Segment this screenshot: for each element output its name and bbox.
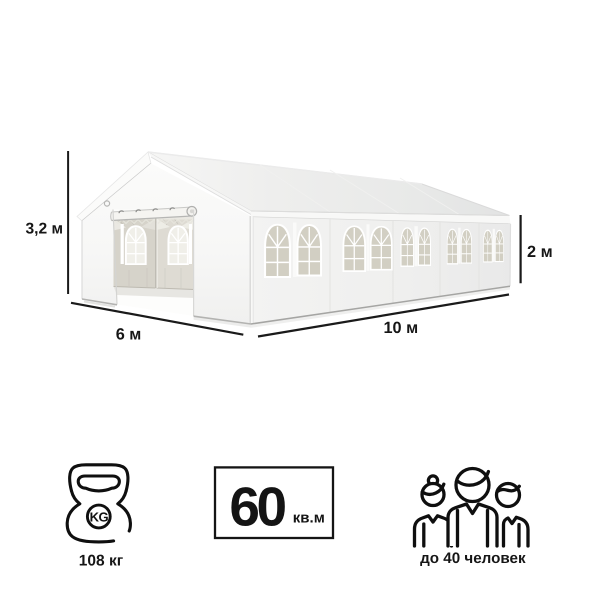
svg-text:60: 60 [229,475,285,537]
svg-text:кв.м: кв.м [293,510,325,527]
svg-text:до 40 человек: до 40 человек [420,550,526,567]
svg-text:6 м: 6 м [116,326,142,344]
svg-text:10 м: 10 м [383,319,418,337]
svg-text:2 м: 2 м [527,243,553,261]
svg-text:3,2 м: 3,2 м [25,221,63,238]
svg-text:KG: KG [90,509,109,524]
svg-text:108 кг: 108 кг [79,553,124,570]
